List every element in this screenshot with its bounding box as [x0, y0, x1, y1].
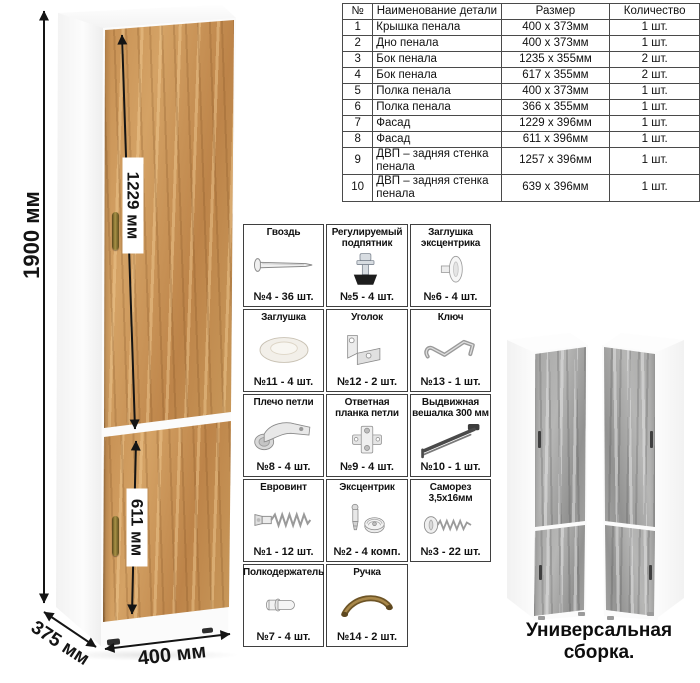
header-size: Размер — [501, 4, 610, 20]
hardware-cell: Выдвижная вешалка 300 мм №10 - 1 шт. — [410, 394, 491, 477]
cell-num: 7 — [343, 116, 373, 132]
cell-num: 2 — [343, 36, 373, 52]
hardware-cell: Евровинт №1 - 12 шт. — [243, 479, 324, 562]
left-variant-foot — [578, 612, 585, 616]
hardware-item-count: №7 - 4 шт. — [257, 631, 311, 643]
hardware-item-count: №4 - 36 шт. — [253, 291, 313, 303]
table-row: 9 ДВП – задняя стенка пенала 1257 х 396м… — [343, 148, 700, 175]
wardrobe-lower-door — [103, 419, 233, 624]
hardware-item-count: №12 - 2 шт. — [337, 376, 397, 388]
hardware-item-name: Плечо петли — [254, 397, 314, 408]
cell-size: 1257 х 396мм — [501, 148, 610, 175]
hardware-item-name: Уголок — [351, 312, 383, 323]
hardware-cell: Ответная планка петли №9 - 4 шт. — [326, 394, 408, 477]
cap-icon — [252, 323, 316, 376]
hardware-item-count: №3 - 22 шт. — [420, 546, 480, 558]
cell-size: 400 х 373мм — [501, 20, 610, 36]
nail-icon — [251, 238, 317, 291]
corner-bracket-icon — [338, 323, 396, 376]
hardware-item-count: №8 - 4 шт. — [257, 461, 311, 473]
wardrobe-drawing — [0, 0, 260, 683]
cell-qty: 1 шт. — [610, 100, 700, 116]
universal-assembly-caption: Универсальная сборка. — [496, 620, 700, 664]
hardware-item-name: Регулируемый подпятник — [328, 227, 406, 249]
cell-name: ДВП – задняя стенка пенала — [373, 174, 501, 201]
cam-lock-icon — [340, 493, 394, 546]
confirmat-screw-icon — [251, 493, 317, 546]
left-variant-upper-door — [533, 345, 588, 529]
table-row: 2 Дно пенала 400 х 373мм 1 шт. — [343, 36, 700, 52]
cell-name: Полка пенала — [373, 84, 501, 100]
right-variant-foot — [647, 612, 654, 616]
left-variant-lower-handle — [539, 565, 542, 580]
hardware-item-count: №5 - 4 шт. — [340, 291, 394, 303]
table-row: 4 Бок пенала 617 х 355мм 2 шт. — [343, 68, 700, 84]
hardware-item-name: Выдвижная вешалка 300 мм — [412, 397, 489, 419]
left-variant-upper-handle — [538, 431, 541, 448]
cell-num: 5 — [343, 84, 373, 100]
hardware-item-name: Ручка — [353, 567, 381, 578]
parts-table: № Наименование детали Размер Количество … — [342, 3, 700, 202]
right-variant-lower-handle — [649, 565, 652, 580]
table-row: 6 Полка пенала 366 х 355мм 1 шт. — [343, 100, 700, 116]
cell-name: Бок пенала — [373, 52, 501, 68]
hardware-item-name: Гвоздь — [267, 227, 301, 238]
universal-assembly-preview — [496, 328, 700, 628]
adjustable-foot-icon — [339, 249, 395, 291]
table-row: 5 Полка пенала 400 х 373мм 1 шт. — [343, 84, 700, 100]
hardware-item-name: Эксцентрик — [339, 482, 394, 493]
cell-qty: 1 шт. — [610, 174, 700, 201]
left-variant-side-panel — [505, 338, 535, 620]
cell-name: ДВП – задняя стенка пенала — [373, 148, 501, 175]
cell-num: 1 — [343, 20, 373, 36]
cell-qty: 1 шт. — [610, 116, 700, 132]
cell-name: Фасад — [373, 132, 501, 148]
hardware-item-count: №11 - 4 шт. — [254, 376, 314, 388]
parts-table-header-row: № Наименование детали Размер Количество — [343, 4, 700, 20]
header-num: № — [343, 4, 373, 20]
table-row: 7 Фасад 1229 х 396мм 1 шт. — [343, 116, 700, 132]
handle-icon — [336, 578, 398, 631]
cell-size: 617 х 355мм — [501, 68, 610, 84]
right-variant-upper-handle — [650, 431, 653, 448]
cell-size: 400 х 373мм — [501, 36, 610, 52]
hardware-cell: Полкодержатель №7 - 4 шт. — [243, 564, 324, 647]
cell-num: 10 — [343, 174, 373, 201]
hinge-arm-icon — [253, 408, 315, 461]
key-icon — [422, 323, 480, 376]
hardware-item-count: №9 - 4 шт. — [340, 461, 394, 473]
hardware-item-name: Саморез 3,5х16мм — [412, 482, 489, 504]
hardware-cell: Ключ №13 - 1 шт. — [410, 309, 491, 392]
cell-size: 639 х 396мм — [501, 174, 610, 201]
dimension-height: 1900 мм — [21, 169, 43, 301]
cell-num: 9 — [343, 148, 373, 175]
hardware-item-name: Заглушка — [261, 312, 306, 323]
hardware-item-name: Полкодержатель — [243, 567, 324, 578]
hardware-cell: Плечо петли №8 - 4 шт. — [243, 394, 324, 477]
cell-qty: 1 шт. — [610, 84, 700, 100]
pullout-hanger-icon — [419, 419, 483, 461]
cell-num: 6 — [343, 100, 373, 116]
hardware-item-name: Ключ — [438, 312, 464, 323]
cell-qty: 1 шт. — [610, 36, 700, 52]
hardware-item-count: №6 - 4 шт. — [424, 291, 478, 303]
cell-num: 3 — [343, 52, 373, 68]
upper-door-handle — [112, 212, 119, 250]
header-name: Наименование детали — [373, 4, 501, 20]
hardware-cell: Саморез 3,5х16мм №3 - 22 шт. — [410, 479, 491, 562]
hardware-grid: Гвоздь №4 - 36 шт. Регулируемый подпятни… — [243, 224, 491, 647]
hardware-item-name: Ответная планка петли — [328, 397, 406, 419]
dimension-upper-door: 1229 мм — [123, 158, 144, 254]
hardware-cell: Заглушка №11 - 4 шт. — [243, 309, 324, 392]
cell-size: 1235 х 355мм — [501, 52, 610, 68]
cell-qty: 2 шт. — [610, 68, 700, 84]
hardware-item-count: №1 - 12 шт. — [253, 546, 313, 558]
cell-size: 366 х 355мм — [501, 100, 610, 116]
cell-qty: 1 шт. — [610, 20, 700, 36]
hardware-cell: Регулируемый подпятник №5 - 4 шт. — [326, 224, 408, 307]
cell-name: Полка пенала — [373, 100, 501, 116]
table-row: 10 ДВП – задняя стенка пенала 639 х 396м… — [343, 174, 700, 201]
cam-cover-icon — [422, 249, 480, 291]
hardware-item-count: №2 - 4 комп. — [333, 546, 400, 558]
hardware-item-name: Заглушка эксцентрика — [412, 227, 489, 249]
cell-name: Крышка пенала — [373, 20, 501, 36]
wardrobe-side-panel — [56, 11, 105, 649]
right-variant-side-panel — [655, 338, 686, 620]
cell-size: 611 х 396мм — [501, 132, 610, 148]
cell-qty: 1 шт. — [610, 132, 700, 148]
cell-size: 1229 х 396мм — [501, 116, 610, 132]
right-variant-upper-door — [602, 345, 657, 529]
self-tapping-screw-icon — [421, 504, 481, 546]
cell-qty: 1 шт. — [610, 148, 700, 175]
header-qty: Количество — [610, 4, 700, 20]
shelf-pin-icon — [257, 578, 311, 631]
table-row: 1 Крышка пенала 400 х 373мм 1 шт. — [343, 20, 700, 36]
hardware-cell: Гвоздь №4 - 36 шт. — [243, 224, 324, 307]
cell-qty: 2 шт. — [610, 52, 700, 68]
table-row: 8 Фасад 611 х 396мм 1 шт. — [343, 132, 700, 148]
hardware-cell: Заглушка эксцентрика №6 - 4 шт. — [410, 224, 491, 307]
hardware-cell: Ручка №14 - 2 шт. — [326, 564, 408, 647]
hardware-cell: Эксцентрик №2 - 4 комп. — [326, 479, 408, 562]
dimension-lower-door: 611 мм — [127, 489, 148, 567]
lower-door-handle — [112, 516, 119, 556]
hardware-item-count: №13 - 1 шт. — [420, 376, 480, 388]
cell-num: 4 — [343, 68, 373, 84]
hardware-item-count: №10 - 1 шт. — [420, 461, 480, 473]
table-row: 3 Бок пенала 1235 х 355мм 2 шт. — [343, 52, 700, 68]
hardware-cell: Уголок №12 - 2 шт. — [326, 309, 408, 392]
hardware-item-count: №14 - 2 шт. — [337, 631, 397, 643]
hinge-plate-icon — [341, 419, 393, 461]
cell-num: 8 — [343, 132, 373, 148]
cell-name: Дно пенала — [373, 36, 501, 52]
parts-table-body: 1 Крышка пенала 400 х 373мм 1 шт. 2 Дно … — [343, 20, 700, 202]
cell-name: Бок пенала — [373, 68, 501, 84]
cell-name: Фасад — [373, 116, 501, 132]
cell-size: 400 х 373мм — [501, 84, 610, 100]
hardware-item-name: Евровинт — [260, 482, 307, 493]
